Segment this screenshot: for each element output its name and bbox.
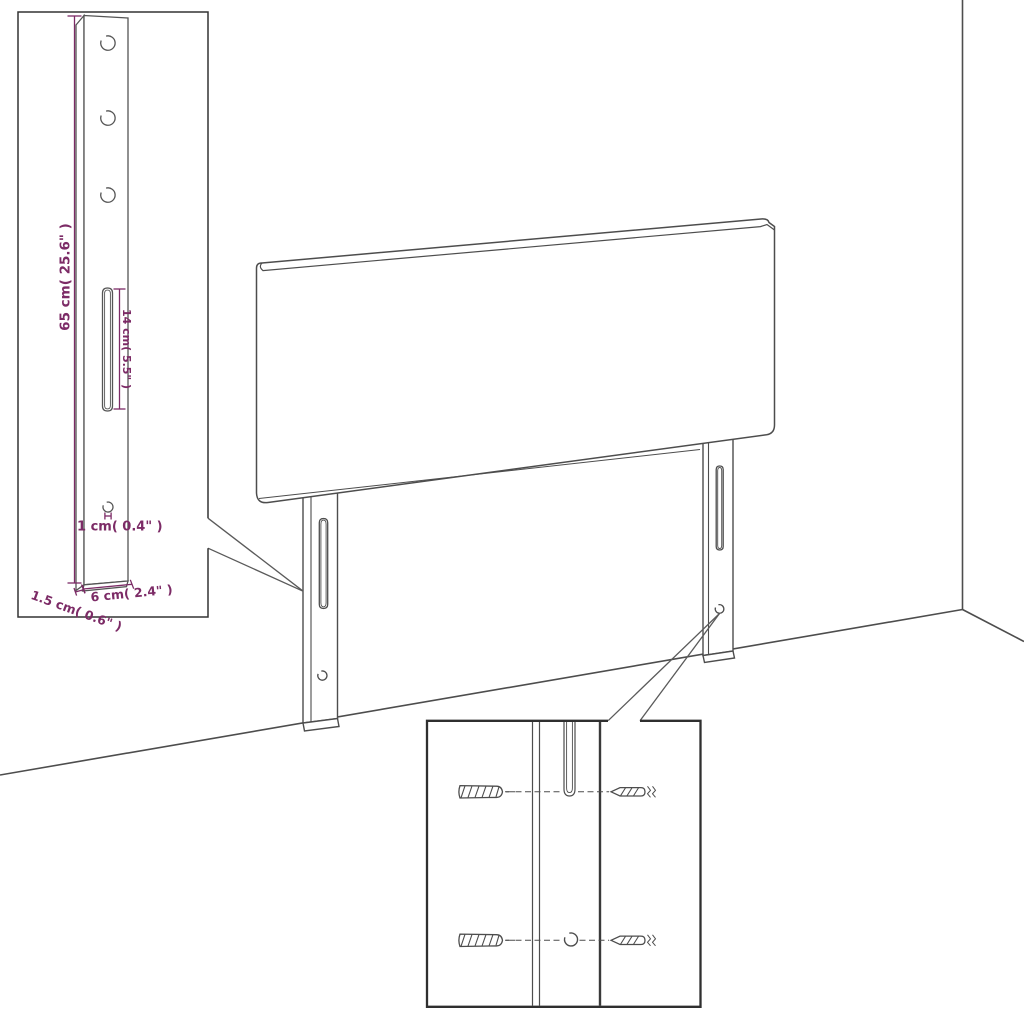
left-leg-outline	[303, 476, 338, 723]
floor-line-right	[963, 610, 1024, 642]
detail-box-top-left: 65 cm( 25.6" ) 14 cm( 5.5" ) 1 cm( 0.4" …	[18, 12, 208, 634]
assembly-diagram-canvas: 65 cm( 25.6" ) 14 cm( 5.5" ) 1 cm( 0.4" …	[0, 0, 1024, 1024]
detail-box-bottom-right	[427, 721, 701, 1007]
label-slot-length: 14 cm( 5.5" )	[120, 309, 133, 389]
leg-detail-view	[76, 16, 128, 592]
leg-side-face	[76, 16, 84, 591]
left-leg	[303, 476, 339, 731]
callout-line	[640, 614, 720, 721]
assembly-diagram: 65 cm( 25.6" ) 14 cm( 5.5" ) 1 cm( 0.4" …	[0, 0, 1024, 1024]
headboard-panel	[257, 219, 775, 503]
leg-front-face	[84, 16, 128, 585]
callout-wedge-left	[208, 518, 303, 591]
panel-outline	[257, 219, 775, 503]
label-leg-height: 65 cm( 25.6" )	[58, 223, 74, 331]
label-hole-diameter: 1 cm( 0.4" )	[77, 520, 163, 535]
right-leg	[703, 428, 735, 663]
